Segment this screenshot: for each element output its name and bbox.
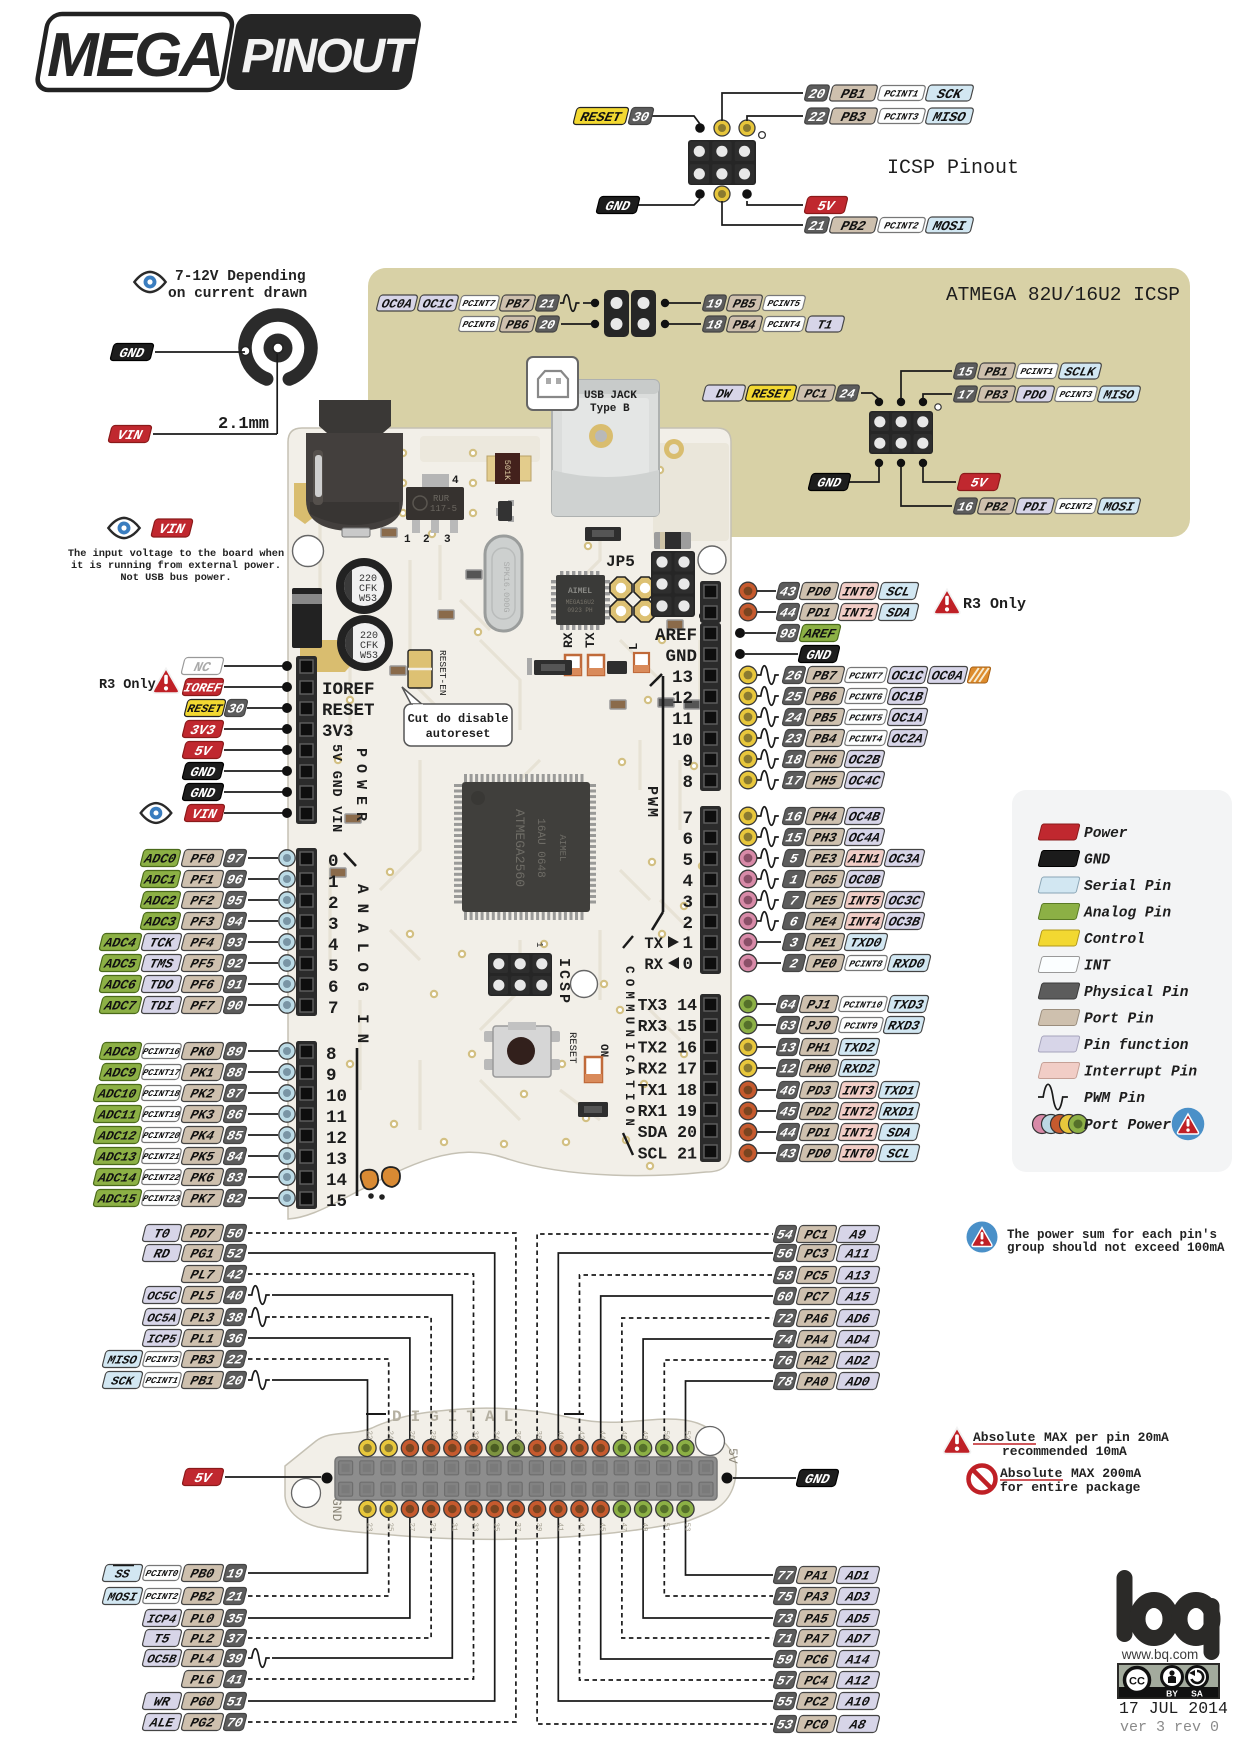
svg-text:PC7: PC7 [803,1290,831,1305]
svg-text:INT1: INT1 [841,606,876,621]
svg-text:AD6: AD6 [843,1312,871,1327]
svg-text:501K: 501K [502,460,512,481]
svg-text:PCINT5: PCINT5 [766,298,802,309]
svg-text:PD0: PD0 [805,585,832,600]
svg-text:PE1: PE1 [811,936,838,951]
svg-text:PCINT18: PCINT18 [142,1089,182,1099]
svg-text:6: 6 [328,978,339,998]
svg-text:ADC13: ADC13 [96,1150,139,1165]
svg-text:PB7: PB7 [504,297,531,312]
svg-text:23: 23 [365,1522,373,1532]
svg-text:GND: GND [603,200,632,215]
svg-text:7: 7 [328,999,339,1019]
svg-text:GND: GND [804,649,833,664]
svg-text:SPK16.000G: SPK16.000G [501,561,511,612]
svg-text:INT3: INT3 [841,1084,876,1099]
svg-text:1: 1 [404,534,411,546]
svg-text:AREF: AREF [655,626,697,646]
svg-text:PA5: PA5 [803,1612,830,1627]
svg-text:PCINT1: PCINT1 [144,1375,179,1386]
svg-text:RESET: RESET [750,387,793,402]
svg-text:PH6: PH6 [811,753,838,768]
svg-text:ON: ON [597,1044,609,1057]
svg-text:PJ0: PJ0 [805,1019,832,1034]
svg-text:A10: A10 [843,1695,871,1710]
svg-text:for entire package: for entire package [1000,1480,1141,1495]
svg-text:Physical Pin: Physical Pin [1084,985,1189,1001]
svg-text:RXD2: RXD2 [841,1062,876,1077]
svg-text:RX1 19: RX1 19 [638,1102,697,1121]
svg-text:PF1: PF1 [189,873,216,888]
svg-text:Port Power: Port Power [1084,1118,1171,1134]
svg-text:AREF: AREF [801,627,838,642]
svg-text:OC3B: OC3B [887,915,922,930]
svg-text:PB1: PB1 [839,88,867,103]
svg-text:AD1: AD1 [843,1569,871,1584]
svg-text:www.bq.com: www.bq.com [1121,1647,1199,1662]
svg-text:OC5B: OC5B [146,1652,179,1666]
svg-text:PK2: PK2 [189,1087,216,1102]
svg-text:PCINT2: PCINT2 [883,221,920,232]
svg-text:INT4: INT4 [847,915,882,930]
svg-text:PC0: PC0 [803,1718,830,1733]
svg-text:TDO: TDO [148,978,175,993]
svg-text:OC2A: OC2A [890,732,925,747]
svg-text:PCINT6: PCINT6 [461,319,497,330]
svg-text:PK6: PK6 [189,1171,216,1186]
svg-text:51: 51 [661,1522,669,1532]
svg-text:53: 53 [683,1522,691,1532]
svg-text:ATMEGA2560: ATMEGA2560 [512,809,527,887]
svg-text:ADC1: ADC1 [142,873,178,888]
svg-text:INT2: INT2 [841,1105,876,1120]
svg-text:PL6: PL6 [189,1673,216,1688]
svg-text:PDO: PDO [1022,388,1049,403]
svg-text:GND: GND [665,647,697,667]
svg-text:PB1: PB1 [983,365,1009,380]
svg-text:INT0: INT0 [841,1147,876,1162]
svg-text:SCL: SCL [885,585,912,600]
svg-text:0: 0 [328,852,339,872]
svg-text:A15: A15 [843,1290,871,1305]
svg-text:PCINT3: PCINT3 [144,1354,180,1365]
svg-text:MISO: MISO [1101,388,1136,403]
svg-text:PB7: PB7 [811,669,839,684]
svg-text:RUR: RUR [433,494,450,504]
svg-text:OC5A: OC5A [146,1311,178,1325]
svg-text:PWM Pin: PWM Pin [1084,1091,1145,1107]
svg-text:PCINT16: PCINT16 [142,1047,182,1057]
svg-text:SDA: SDA [885,1126,912,1141]
svg-text:Port Pin: Port Pin [1084,1012,1154,1028]
svg-text:PA6: PA6 [803,1312,830,1327]
svg-text:PL4: PL4 [189,1652,216,1667]
svg-text:PK4: PK4 [189,1129,216,1144]
svg-text:INT1: INT1 [841,1126,876,1141]
svg-text:ADC9: ADC9 [102,1066,138,1081]
svg-text:PA0: PA0 [803,1375,830,1390]
svg-text:0: 0 [682,955,693,975]
svg-text:PK5: PK5 [189,1150,216,1165]
svg-text:VIN: VIN [115,429,144,444]
svg-text:PB2: PB2 [983,500,1010,515]
svg-text:W53: W53 [359,594,377,605]
svg-text:1: 1 [328,873,339,893]
svg-text:PA4: PA4 [803,1333,830,1348]
svg-text:1: 1 [682,934,693,954]
svg-text:IOREF: IOREF [182,681,224,696]
svg-text:OC0B: OC0B [847,873,882,888]
svg-text:PINOUT: PINOUT [241,30,416,83]
svg-text:TX1 18: TX1 18 [638,1081,698,1100]
svg-text:DIGITAL: DIGITAL [392,1408,522,1426]
svg-text:ICSP: ICSP [555,958,572,1006]
svg-text:PF2: PF2 [189,894,216,909]
svg-text:33: 33 [471,1522,479,1532]
svg-text:8: 8 [326,1045,337,1065]
svg-text:31: 31 [449,1522,457,1532]
svg-text:44: 44 [598,1430,606,1440]
svg-text:30: 30 [449,1430,457,1440]
svg-text:AIMEL: AIMEL [568,587,592,596]
svg-text:PH1: PH1 [805,1041,832,1056]
svg-text:OC0A: OC0A [380,297,414,312]
svg-text:OC4C: OC4C [847,774,882,789]
svg-text:Absolute: Absolute [973,1430,1036,1445]
svg-text:PK3: PK3 [189,1108,216,1123]
svg-text:ATMEGA 82U/16U2 ICSP: ATMEGA 82U/16U2 ICSP [946,284,1180,306]
svg-text:PE0: PE0 [811,957,838,972]
svg-text:A14: A14 [843,1653,871,1668]
svg-text:PCINT20: PCINT20 [142,1131,182,1141]
svg-text:TXD3: TXD3 [890,998,925,1013]
svg-text:AD3: AD3 [843,1590,871,1605]
svg-text:TXD2: TXD2 [841,1041,876,1056]
svg-text:3: 3 [444,534,451,546]
svg-text:SDA: SDA [885,606,912,621]
svg-text:PL1: PL1 [189,1332,216,1347]
svg-text:PF6: PF6 [189,978,216,993]
svg-text:PCINT4: PCINT4 [766,319,802,330]
svg-text:IN: IN [353,1014,371,1053]
svg-text:MISO: MISO [105,1353,139,1367]
svg-text:GND: GND [816,476,843,491]
svg-text:3V3: 3V3 [322,722,354,742]
svg-text:The input voltage to the board: The input voltage to the board when [68,548,284,560]
svg-text:PC2: PC2 [803,1695,830,1710]
svg-text:PH4: PH4 [811,810,838,825]
svg-text:GND: GND [188,766,217,781]
svg-text:Type B: Type B [590,403,630,415]
svg-text:TX: TX [583,632,598,648]
svg-text:PL3: PL3 [189,1311,216,1326]
svg-text:ICP5: ICP5 [146,1332,179,1346]
svg-text:Pin function: Pin function [1084,1038,1189,1054]
svg-text:11: 11 [326,1108,347,1128]
svg-text:OC1C: OC1C [421,297,455,312]
svg-text:PE4: PE4 [811,915,838,930]
svg-text:PCINT6: PCINT6 [848,691,884,702]
svg-text:47: 47 [619,1522,627,1531]
svg-text:9: 9 [326,1066,337,1086]
svg-text:5: 5 [328,957,339,977]
svg-text:Cut do disable: Cut do disable [408,712,509,726]
svg-text:PD3: PD3 [805,1084,832,1099]
svg-text:RX: RX [644,956,663,974]
svg-text:Not USB bus power.: Not USB bus power. [120,572,231,584]
svg-text:29: 29 [428,1522,436,1531]
svg-text:PF7: PF7 [189,999,217,1014]
svg-text:15: 15 [326,1192,347,1212]
svg-text:PH5: PH5 [811,774,838,789]
svg-text:PB2: PB2 [189,1590,216,1605]
svg-text:The power sum for each pin's: The power sum for each pin's [1007,1228,1217,1242]
svg-text:PC4: PC4 [803,1674,830,1689]
svg-text:PCINT7: PCINT7 [461,298,497,309]
svg-text:PCINT9: PCINT9 [843,1020,879,1031]
svg-text:BY: BY [1166,1689,1178,1699]
svg-text:TDI: TDI [148,999,175,1014]
svg-text:autoreset: autoreset [426,727,491,741]
svg-text:TX2 16: TX2 16 [638,1038,697,1057]
svg-text:MEGA16U2: MEGA16U2 [566,599,595,606]
svg-text:GND: GND [188,787,217,802]
svg-text:ADC15: ADC15 [96,1192,139,1207]
svg-text:PB4: PB4 [811,732,838,747]
svg-text:14: 14 [326,1171,347,1191]
svg-text:5: 5 [682,851,693,871]
svg-text:3: 3 [682,893,693,913]
svg-text:PA1: PA1 [803,1569,830,1584]
svg-text:ADC7: ADC7 [102,999,139,1014]
svg-text:PC1: PC1 [803,387,829,402]
svg-text:AD4: AD4 [843,1333,871,1348]
svg-text:48: 48 [640,1430,648,1439]
svg-text:Interrupt Pin: Interrupt Pin [1084,1065,1197,1081]
svg-text:PG5: PG5 [811,873,838,888]
svg-text:40: 40 [555,1430,563,1440]
svg-text:17 JUL 2014: 17 JUL 2014 [1119,1699,1228,1718]
svg-text:OC2B: OC2B [847,753,882,768]
svg-text:RESET: RESET [322,701,375,721]
svg-text:MAX 200mA: MAX 200mA [1071,1466,1141,1481]
svg-text:Serial Pin: Serial Pin [1084,879,1171,895]
svg-text:ADC11: ADC11 [96,1108,138,1123]
svg-text:on current drawn: on current drawn [168,286,307,302]
svg-text:PCINT1: PCINT1 [1019,366,1054,377]
svg-text:AIMEL: AIMEL [557,834,567,861]
svg-text:ADC8: ADC8 [102,1045,138,1060]
svg-text:24: 24 [386,1430,394,1440]
svg-text:OC0A: OC0A [930,669,965,684]
svg-text:12: 12 [326,1129,347,1149]
svg-text:5V: 5V [725,1448,740,1464]
svg-text:INT0: INT0 [841,585,876,600]
svg-text:ANALOG: ANALOG [353,884,371,1002]
svg-text:TCK: TCK [148,936,176,951]
svg-text:PCINT22: PCINT22 [142,1173,182,1183]
svg-text:4: 4 [682,872,693,892]
svg-text:PCINT23: PCINT23 [142,1194,182,1204]
svg-text:RXD0: RXD0 [891,957,926,972]
svg-text:ADC2: ADC2 [142,894,178,909]
svg-text:PB3: PB3 [839,111,867,126]
svg-text:ver 3 rev 0: ver 3 rev 0 [1120,1719,1219,1736]
svg-text:PG2: PG2 [189,1716,216,1731]
svg-text:5V GND VIN: 5V GND VIN [328,744,343,833]
svg-text:PF5: PF5 [189,957,216,972]
svg-text:Analog Pin: Analog Pin [1083,906,1171,922]
svg-text:PB2: PB2 [839,220,867,235]
svg-text:PL7: PL7 [189,1268,217,1283]
svg-text:OC1B: OC1B [890,690,925,705]
svg-text:ADC0: ADC0 [142,852,178,867]
svg-text:PCINT8: PCINT8 [848,958,884,969]
svg-text:11: 11 [672,710,693,730]
svg-text:PB1: PB1 [189,1374,216,1389]
svg-text:PH3: PH3 [811,831,838,846]
svg-text:2: 2 [682,914,693,934]
svg-text:COMMUNICATION: COMMUNICATION [622,966,636,1131]
svg-text:ALE: ALE [147,1716,176,1731]
svg-text:3V3: 3V3 [188,724,216,739]
svg-text:PA2: PA2 [803,1354,830,1369]
svg-text:ICP4: ICP4 [146,1612,178,1626]
svg-text:ADC3: ADC3 [142,915,178,930]
svg-text:GND: GND [1084,853,1110,869]
svg-text:PJ1: PJ1 [805,998,832,1013]
svg-text:TXD1: TXD1 [881,1084,916,1099]
svg-text:27: 27 [407,1522,415,1531]
svg-text:36: 36 [513,1430,521,1440]
svg-text:R3 Only: R3 Only [963,596,1026,613]
svg-text:PA3: PA3 [803,1590,830,1605]
svg-text:13: 13 [672,668,693,688]
svg-text:49: 49 [640,1522,648,1531]
svg-text:2: 2 [328,894,339,914]
svg-text:PL0: PL0 [189,1612,216,1627]
svg-text:L: L [627,643,641,650]
svg-text:PCINT7: PCINT7 [848,670,884,681]
svg-text:PL2: PL2 [189,1632,216,1647]
svg-text:10: 10 [672,731,693,751]
svg-text:SCLK: SCLK [1063,365,1098,380]
svg-text:10: 10 [326,1087,347,1107]
svg-text:ADC6: ADC6 [102,978,138,993]
svg-text:W53: W53 [360,651,378,662]
svg-text:PCINT21: PCINT21 [142,1152,181,1162]
svg-text:RXD1: RXD1 [881,1105,916,1120]
svg-text:TXD0: TXD0 [848,936,883,951]
svg-text:PB4: PB4 [731,318,758,333]
svg-text:PF4: PF4 [189,936,216,951]
svg-text:ADC4: ADC4 [102,936,138,951]
svg-text:7-12V Depending: 7-12V Depending [175,269,306,285]
svg-text:35: 35 [492,1522,500,1532]
svg-text:PB5: PB5 [731,297,758,312]
svg-text:PB3: PB3 [983,388,1010,403]
svg-text:RX2 17: RX2 17 [638,1060,697,1079]
svg-text:SDA 20: SDA 20 [638,1123,697,1142]
svg-text:MAX per pin 20mA: MAX per pin 20mA [1044,1430,1169,1445]
svg-text:PK0: PK0 [189,1045,216,1060]
svg-text:ADC5: ADC5 [102,957,138,972]
svg-text:VIN: VIN [190,808,219,823]
svg-text:RX3 15: RX3 15 [638,1017,698,1036]
svg-text:46: 46 [619,1430,627,1440]
svg-text:26: 26 [407,1430,415,1440]
svg-text:R3 Only: R3 Only [99,678,156,693]
svg-text:RX: RX [561,632,576,648]
svg-text:OC3A: OC3A [887,852,922,867]
svg-text:41: 41 [555,1522,563,1532]
svg-text:PG1: PG1 [189,1247,216,1262]
svg-text:SA: SA [1191,1689,1203,1699]
svg-text:PC6: PC6 [803,1653,830,1668]
svg-text:8: 8 [682,773,693,793]
svg-text:group should not exceed 100mA: group should not exceed 100mA [1007,1241,1225,1255]
svg-text:AIN1: AIN1 [846,852,882,867]
svg-text:PD1: PD1 [805,606,832,621]
svg-text:PF0: PF0 [189,852,216,867]
svg-text:PD7: PD7 [189,1227,217,1242]
svg-text:PE5: PE5 [811,894,838,909]
svg-text:PCINT2: PCINT2 [144,1591,180,1602]
svg-text:4: 4 [328,936,339,956]
svg-text:PH0: PH0 [805,1062,832,1077]
svg-text:RESET: RESET [186,702,225,716]
svg-text:13: 13 [326,1150,347,1170]
svg-text:32: 32 [471,1430,479,1439]
svg-text:ADC10: ADC10 [96,1087,139,1102]
svg-text:16AU 0648: 16AU 0648 [534,818,546,877]
svg-text:PD1: PD1 [805,1126,832,1141]
svg-text:it is running from external po: it is running from external power. [71,560,281,572]
svg-text:OC4B: OC4B [847,810,882,825]
svg-text:PB0: PB0 [189,1567,216,1582]
svg-text:PL5: PL5 [189,1289,216,1304]
svg-text:PF3: PF3 [189,915,216,930]
svg-text:PC1: PC1 [803,1228,830,1243]
svg-text:3: 3 [328,915,339,935]
svg-text:52: 52 [683,1430,691,1439]
svg-text:2.1mm: 2.1mm [218,415,269,434]
svg-text:GND: GND [803,1473,832,1488]
svg-text:IOREF: IOREF [322,680,375,700]
svg-text:PCINT19: PCINT19 [142,1110,182,1120]
svg-text:43: 43 [577,1522,585,1532]
svg-text:PD0: PD0 [805,1147,832,1162]
svg-text:AD7: AD7 [843,1632,872,1647]
svg-text:39: 39 [534,1522,542,1531]
svg-text:1: 1 [534,942,544,947]
svg-text:9: 9 [682,752,693,772]
svg-text:INT: INT [1084,959,1111,975]
svg-text:OC3C: OC3C [887,894,922,909]
svg-text:A13: A13 [843,1269,871,1284]
svg-text:PCINT1: PCINT1 [883,89,920,100]
svg-text:ADC14: ADC14 [96,1171,139,1186]
svg-text:PB6: PB6 [811,690,838,705]
svg-text:TMS: TMS [148,957,175,972]
svg-text:PCINT3: PCINT3 [1058,389,1094,400]
svg-text:GND: GND [329,1498,344,1522]
svg-text:AD0: AD0 [843,1375,871,1390]
svg-text:PCINT17: PCINT17 [142,1068,182,1078]
svg-text:MEGA: MEGA [47,21,221,90]
svg-text:PK7: PK7 [189,1192,217,1207]
svg-text:38: 38 [534,1430,542,1439]
